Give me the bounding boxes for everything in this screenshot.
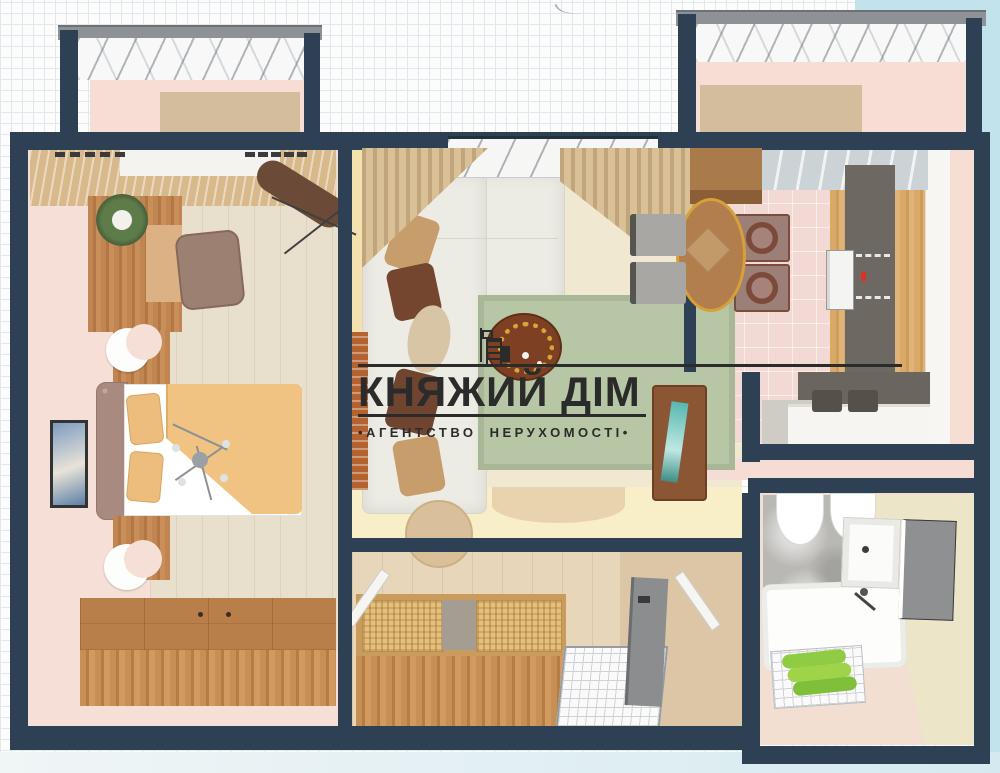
balcony-right-rug [700, 85, 862, 133]
wall-bedroom-living [338, 132, 352, 750]
watermark-rule-top [358, 364, 902, 367]
desk-plant-pot [112, 210, 132, 230]
coffee-table-dishes [522, 352, 529, 359]
oven-indicator-red [861, 272, 866, 281]
wall-south-main [10, 726, 758, 750]
bedroom-window-vent-left [55, 152, 125, 157]
bedroom-wardrobe-top [80, 598, 336, 650]
oven [826, 250, 854, 310]
balcony-right-post-right [966, 18, 982, 133]
entry-door-handle [638, 596, 650, 603]
watermark-title: КНЯЖИЙ ДІМ [358, 368, 650, 416]
hall-wardrobe-basket-left [362, 600, 444, 652]
floor-plan-render: КНЯЖИЙ ДІМ •АГЕНТСТВО НЕРУХОМОСТІ• [0, 0, 1000, 773]
bedroom-wardrobe-front [80, 650, 336, 706]
desk-chair [174, 229, 246, 311]
hall-wardrobe-middle-panel [442, 600, 476, 650]
balcony-right-post-left [678, 14, 696, 133]
appliance-controls-top [856, 254, 890, 257]
wall-south-bathroom [742, 746, 990, 764]
wall-hallway-north [338, 538, 758, 552]
chandelier-hub [192, 452, 208, 468]
dining-chair-gray-2 [630, 262, 686, 304]
wall-painting [50, 420, 88, 508]
washing-machine [841, 517, 901, 589]
bed-pillow-1 [125, 392, 164, 445]
bath-faucet-head [860, 588, 868, 596]
kitchen-wall-cabinet [690, 148, 762, 204]
balcony-left-glazing [78, 38, 304, 80]
balcony-left-post-left [60, 30, 78, 133]
dining-chair-gray-1 [630, 214, 686, 256]
buildings-icon [474, 326, 514, 364]
hall-wardrobe-front [356, 656, 566, 726]
buildings-icon-side-tower [502, 346, 510, 362]
doorway-arch-threshold [492, 487, 625, 523]
watermark-subtitle: •АГЕНТСТВО НЕРУХОМОСТІ• [358, 425, 650, 441]
kitchen-east-margin [950, 150, 974, 444]
bedroom-window-vent-right [245, 152, 307, 157]
wall-corridor-south [748, 478, 990, 493]
bathroom-mirror-panel [898, 519, 956, 621]
hall-wardrobe-basket-right [476, 600, 562, 652]
balcony-right-glazing [696, 24, 966, 62]
washing-machine-handle [862, 546, 869, 553]
buildings-icon-tower [486, 338, 502, 366]
moon-lamp-bottom-cut [124, 540, 162, 578]
balcony-left-post-right [304, 33, 320, 133]
balcony-door-glazing [758, 150, 928, 190]
wall-bathroom-west-upper [742, 372, 760, 462]
wall-bathroom-west [742, 493, 760, 764]
bed-pillow-2 [126, 451, 164, 504]
ottoman [405, 500, 473, 568]
bar-stools [812, 390, 842, 412]
moon-lamp-top-cut [126, 324, 162, 360]
sofa-pillow-tan-2 [391, 434, 446, 497]
wall-kitchen-south [742, 444, 990, 460]
balcony-left-rug [160, 92, 300, 133]
wall-west [10, 132, 28, 750]
wardrobe-handles [198, 612, 203, 617]
appliance-controls-bottom [856, 296, 890, 299]
